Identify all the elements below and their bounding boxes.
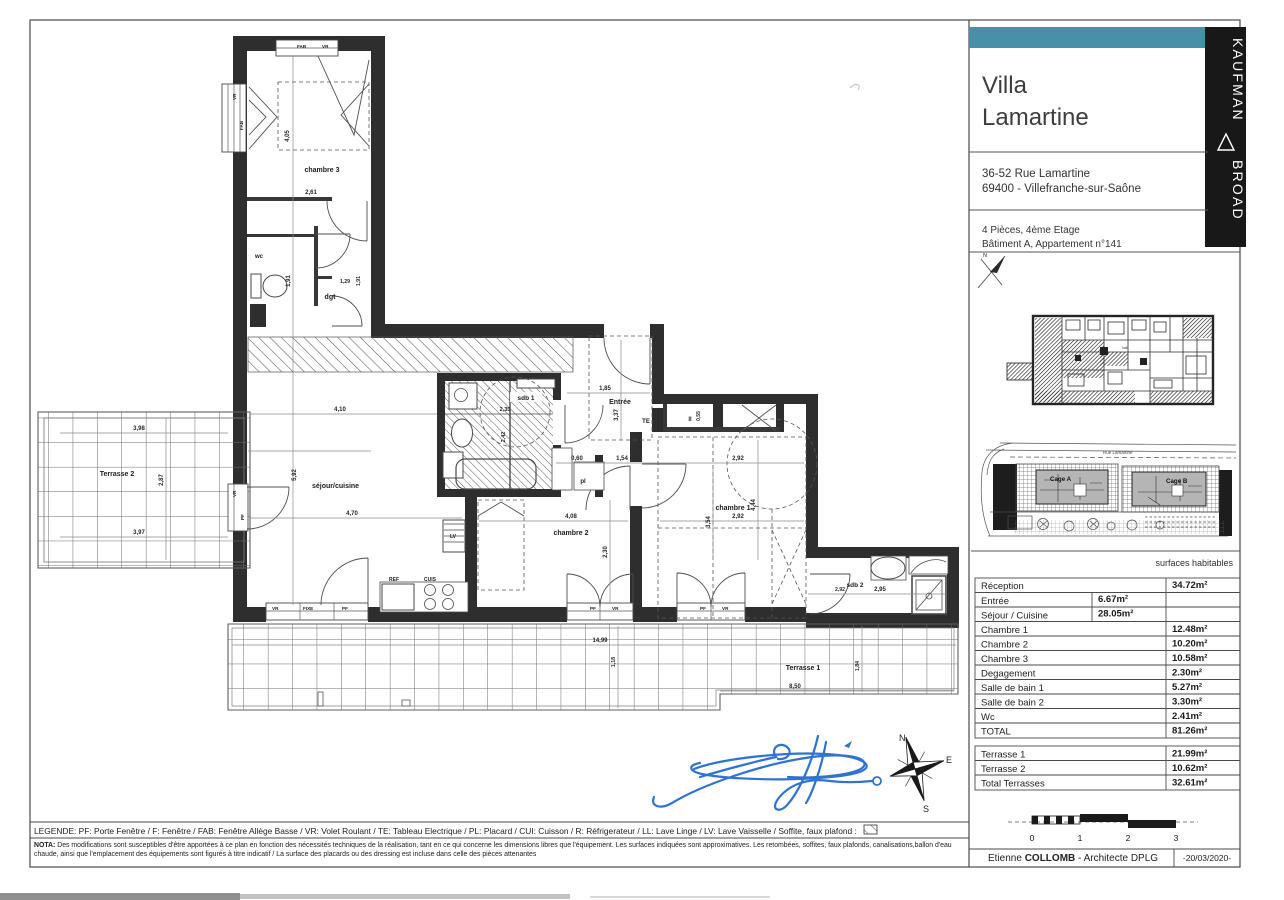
svg-text:2,95: 2,95 <box>874 587 886 593</box>
svg-text:Chambre 3: Chambre 3 <box>981 654 1028 665</box>
svg-text:Réception: Réception <box>981 581 1024 592</box>
svg-text:10.20m²: 10.20m² <box>1172 639 1207 650</box>
svg-text:4 Pièces, 4ème Etage: 4 Pièces, 4ème Etage <box>982 225 1080 236</box>
svg-text:surfaces habitables: surfaces habitables <box>1155 558 1233 568</box>
svg-text:2.41m²: 2.41m² <box>1172 711 1202 722</box>
svg-text:VR: VR <box>272 606 279 611</box>
svg-text:KAUFMAN: KAUFMAN <box>1230 38 1246 122</box>
svg-text:Bâtiment A, Appartement n°141: Bâtiment A, Appartement n°141 <box>982 239 1122 250</box>
svg-text:10.62m²: 10.62m² <box>1172 763 1207 774</box>
svg-text:wc: wc <box>254 254 264 260</box>
svg-text:Terrasse 1: Terrasse 1 <box>981 750 1025 761</box>
svg-text:chaude, ainsi que l'emplacemen: chaude, ainsi que l'emplacement des équi… <box>34 851 537 858</box>
svg-text:N: N <box>983 253 987 259</box>
svg-text:5.27m²: 5.27m² <box>1172 682 1202 693</box>
svg-text:6.67m²: 6.67m² <box>1098 594 1128 605</box>
svg-text:2,92: 2,92 <box>732 456 744 462</box>
svg-text:Terrasse 1: Terrasse 1 <box>786 665 821 672</box>
svg-text:S: S <box>923 804 929 814</box>
svg-text:Lamartine: Lamartine <box>982 104 1089 131</box>
svg-text:0,55: 0,55 <box>696 411 702 421</box>
svg-text:Cage B: Cage B <box>1166 478 1188 485</box>
svg-text:chambre 3: chambre 3 <box>304 167 339 174</box>
svg-text:VR: VR <box>722 606 729 611</box>
svg-text:2,92: 2,92 <box>732 514 744 520</box>
svg-text:chambre 2: chambre 2 <box>553 530 588 537</box>
svg-text:2: 2 <box>1126 833 1131 843</box>
svg-text:3,37: 3,37 <box>614 409 620 421</box>
svg-text:4,10: 4,10 <box>334 407 346 413</box>
svg-text:dgt: dgt <box>325 294 337 301</box>
svg-text:sdb 2: sdb 2 <box>847 582 864 589</box>
svg-text:34.72m²: 34.72m² <box>1172 580 1207 591</box>
svg-text:chambre 1: chambre 1 <box>715 505 750 512</box>
svg-text:TE: TE <box>642 419 650 425</box>
svg-text:VR: VR <box>322 44 329 49</box>
svg-text:Séjour / Cuisine: Séjour / Cuisine <box>981 611 1048 622</box>
svg-text:36-52 Rue Lamartine: 36-52 Rue Lamartine <box>982 168 1090 180</box>
svg-text:1,85: 1,85 <box>599 386 611 392</box>
svg-text:3: 3 <box>1174 833 1179 843</box>
svg-text:FAB: FAB <box>297 44 307 49</box>
svg-text:Salle de bain 2: Salle de bain 2 <box>981 698 1044 709</box>
svg-text:REF: REF <box>389 577 399 583</box>
svg-text:2,42: 2,42 <box>501 432 507 443</box>
svg-text:1,18: 1,18 <box>611 657 617 667</box>
svg-text:21.99m²: 21.99m² <box>1172 749 1207 760</box>
svg-text:Rue Lamartine: Rue Lamartine <box>1103 450 1133 455</box>
svg-text:0: 0 <box>1030 833 1035 843</box>
svg-text:Terrasse 2: Terrasse 2 <box>100 471 135 478</box>
svg-text:4,05: 4,05 <box>285 130 291 142</box>
svg-text:1,91: 1,91 <box>286 275 292 287</box>
svg-text:PF: PF <box>590 606 596 611</box>
svg-text:1: 1 <box>1078 833 1083 843</box>
svg-text:Chambre 2: Chambre 2 <box>981 640 1028 651</box>
svg-text:séjour/cuisine: séjour/cuisine <box>312 483 359 490</box>
svg-text:Wc: Wc <box>981 712 995 723</box>
svg-text:CUIS: CUIS <box>424 577 437 583</box>
svg-text:2,35: 2,35 <box>500 407 511 413</box>
svg-text:VR: VR <box>612 606 619 611</box>
svg-text:ll: ll <box>688 417 692 423</box>
svg-text:1,54: 1,54 <box>616 456 628 462</box>
svg-text:Degagement: Degagement <box>981 669 1036 680</box>
svg-text:2,92: 2,92 <box>835 587 845 593</box>
svg-text:PF: PF <box>240 514 245 520</box>
svg-text:Salle de bain 1: Salle de bain 1 <box>981 683 1044 694</box>
svg-text:0,60: 0,60 <box>571 456 583 462</box>
svg-text:pl: pl <box>580 479 586 485</box>
svg-text:FIXE: FIXE <box>303 606 313 611</box>
svg-text:LEGENDE: PF: Porte Fenêtre / F: LEGENDE: PF: Porte Fenêtre / F: Fenêtre … <box>34 826 857 836</box>
svg-text:hall: hall <box>1122 346 1128 350</box>
svg-text:10.58m²: 10.58m² <box>1172 653 1207 664</box>
svg-text:3,98: 3,98 <box>133 426 145 432</box>
svg-text:Entrée: Entrée <box>609 399 631 406</box>
svg-text:-20/03/2020-: -20/03/2020- <box>1183 853 1231 863</box>
svg-text:PF: PF <box>342 606 348 611</box>
svg-text:E: E <box>946 755 952 765</box>
svg-text:4,08: 4,08 <box>565 514 577 520</box>
svg-text:N: N <box>899 733 906 743</box>
svg-text:TOTAL: TOTAL <box>981 727 1011 738</box>
svg-text:1,84: 1,84 <box>855 661 861 671</box>
svg-text:sdb 1: sdb 1 <box>518 395 535 402</box>
svg-text:Cage A: Cage A <box>1050 476 1072 483</box>
svg-text:LV: LV <box>450 534 457 540</box>
svg-text:5,92: 5,92 <box>292 469 298 481</box>
svg-text:Total Terrasses: Total Terrasses <box>981 779 1045 790</box>
svg-text:PF: PF <box>700 606 706 611</box>
svg-text:3,97: 3,97 <box>133 530 145 536</box>
svg-text:Villa: Villa <box>982 72 1028 99</box>
svg-text:Etienne COLLOMB - Architecte D: Etienne COLLOMB - Architecte DPLG <box>988 853 1158 864</box>
svg-text:FAB: FAB <box>239 120 244 130</box>
svg-text:VR: VR <box>232 490 237 497</box>
svg-text:VR: VR <box>232 93 237 100</box>
svg-text:1,29: 1,29 <box>340 279 350 285</box>
svg-text:69400 - Villefranche-sur-Saôn: 69400 - Villefranche-sur-Saône <box>982 183 1141 195</box>
svg-text:12.48m²: 12.48m² <box>1172 624 1207 635</box>
svg-text:Terrasse 2: Terrasse 2 <box>981 764 1025 775</box>
svg-text:4,70: 4,70 <box>346 511 358 517</box>
svg-text:NOTA: Des modifications sont: NOTA: Des modifications sont susceptible… <box>34 842 952 849</box>
svg-text:2,61: 2,61 <box>305 190 317 196</box>
svg-text:3.30m²: 3.30m² <box>1172 697 1202 708</box>
svg-text:1,91: 1,91 <box>356 276 362 286</box>
svg-text:2.30m²: 2.30m² <box>1172 668 1202 679</box>
svg-text:8,50: 8,50 <box>789 684 801 690</box>
svg-text:32.61m²: 32.61m² <box>1172 778 1207 789</box>
svg-text:Entrée: Entrée <box>981 596 1009 607</box>
svg-text:81.26m²: 81.26m² <box>1172 726 1207 737</box>
svg-text:28.05m²: 28.05m² <box>1098 609 1133 620</box>
svg-text:2,87: 2,87 <box>159 474 165 486</box>
svg-text:4,44: 4,44 <box>751 499 757 511</box>
svg-text:BROAD: BROAD <box>1230 160 1246 221</box>
svg-text:3,54: 3,54 <box>706 516 712 528</box>
svg-text:14,99: 14,99 <box>592 638 608 644</box>
svg-text:Chambre 1: Chambre 1 <box>981 625 1028 636</box>
svg-text:2,30: 2,30 <box>603 546 609 558</box>
